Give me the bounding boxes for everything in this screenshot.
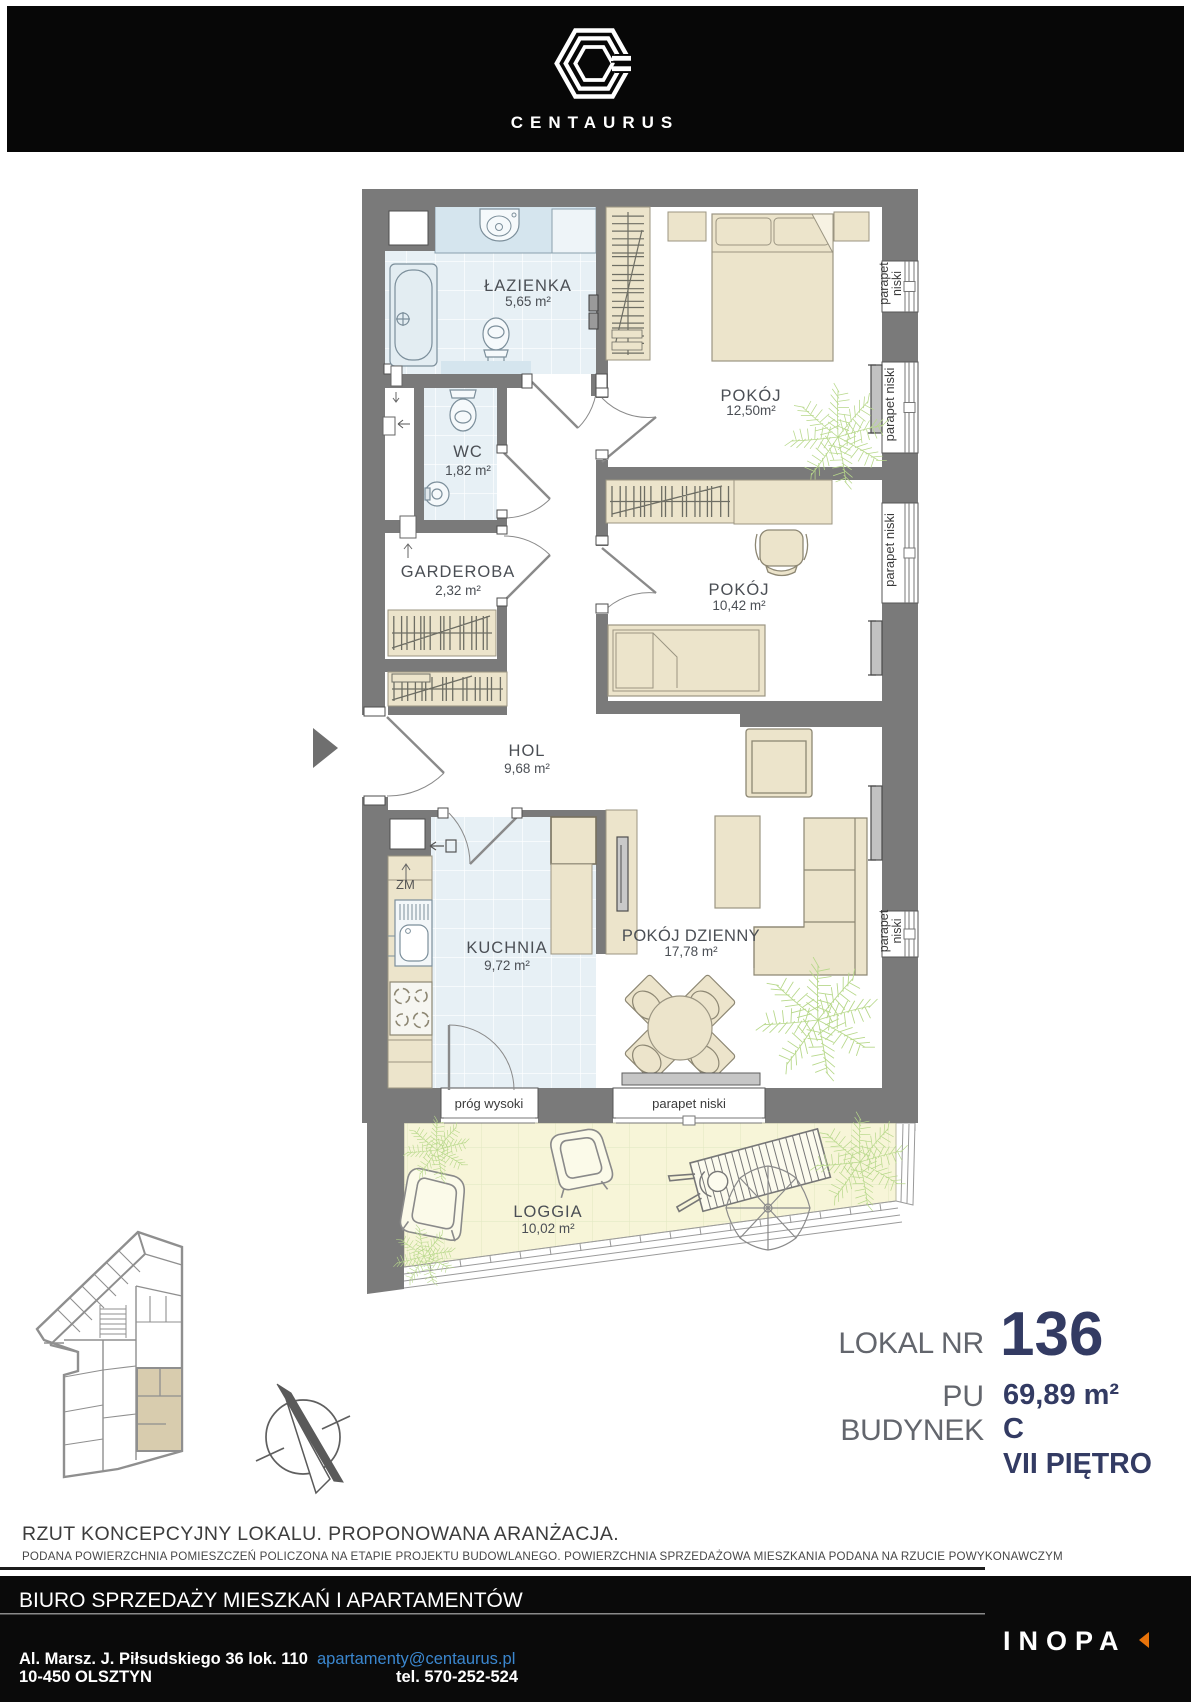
svg-text:BUDYNEK: BUDYNEK <box>840 1414 984 1447</box>
svg-text:LOKAL NR: LOKAL NR <box>838 1327 984 1360</box>
svg-text:niski: niski <box>890 271 904 296</box>
svg-text:GARDEROBA: GARDEROBA <box>401 563 515 581</box>
svg-text:parapet niski: parapet niski <box>652 1096 726 1111</box>
svg-text:apartamenty@centaurus.pl: apartamenty@centaurus.pl <box>317 1650 515 1668</box>
svg-text:BIURO SPRZEDAŻY MIESZKAŃ I APA: BIURO SPRZEDAŻY MIESZKAŃ I APARTAMENTÓW <box>19 1589 523 1612</box>
svg-text:PU: PU <box>942 1380 984 1413</box>
svg-text:niski: niski <box>890 918 904 943</box>
svg-text:LOGGIA: LOGGIA <box>513 1203 582 1221</box>
svg-text:C: C <box>1003 1413 1024 1445</box>
svg-text:5,65 m²: 5,65 m² <box>505 294 551 309</box>
svg-text:CENTAURUS: CENTAURUS <box>511 113 679 132</box>
svg-text:WC: WC <box>453 443 483 461</box>
svg-text:RZUT KONCEPCYJNY LOKALU. PROPO: RZUT KONCEPCYJNY LOKALU. PROPONOWANA ARA… <box>22 1522 619 1545</box>
svg-text:136: 136 <box>1000 1300 1103 1369</box>
svg-text:9,68 m²: 9,68 m² <box>504 761 550 776</box>
svg-text:12,50m²: 12,50m² <box>726 403 776 418</box>
svg-text:VII PIĘTRO: VII PIĘTRO <box>1003 1448 1152 1480</box>
svg-text:9,72 m²: 9,72 m² <box>484 958 530 973</box>
svg-text:10-450 OLSZTYN: 10-450 OLSZTYN <box>19 1668 152 1686</box>
svg-text:17,78 m²: 17,78 m² <box>664 944 718 959</box>
svg-text:parapet niski: parapet niski <box>882 513 897 587</box>
svg-text:10,42 m²: 10,42 m² <box>712 598 766 613</box>
svg-text:parapet: parapet <box>877 909 891 952</box>
svg-text:tel. 570-252-524: tel. 570-252-524 <box>396 1668 519 1686</box>
svg-text:INOPA: INOPA <box>1003 1626 1127 1656</box>
svg-text:1,82 m²: 1,82 m² <box>445 463 491 478</box>
svg-text:POKÓJ DZIENNY: POKÓJ DZIENNY <box>622 926 760 945</box>
svg-text:Al. Marsz. J. Piłsudskiego 36: Al. Marsz. J. Piłsudskiego 36 lok. 110 <box>19 1650 308 1668</box>
svg-text:próg wysoki: próg wysoki <box>455 1096 524 1111</box>
svg-text:parapet: parapet <box>877 262 891 305</box>
svg-text:KUCHNIA: KUCHNIA <box>466 939 547 957</box>
svg-text:69,89 m²: 69,89 m² <box>1003 1379 1119 1411</box>
svg-text:parapet niski: parapet niski <box>882 368 897 442</box>
svg-text:HOL: HOL <box>509 742 546 760</box>
svg-text:PODANA POWIERZCHNIA POMIESZCZE: PODANA POWIERZCHNIA POMIESZCZEŃ POLICZON… <box>22 1550 1063 1563</box>
svg-text:ZM: ZM <box>396 877 415 892</box>
svg-text:10,02 m²: 10,02 m² <box>521 1221 575 1236</box>
svg-text:2,32 m²: 2,32 m² <box>435 583 481 598</box>
svg-text:ŁAZIENKA: ŁAZIENKA <box>484 277 572 295</box>
svg-text:POKÓJ: POKÓJ <box>709 580 770 599</box>
